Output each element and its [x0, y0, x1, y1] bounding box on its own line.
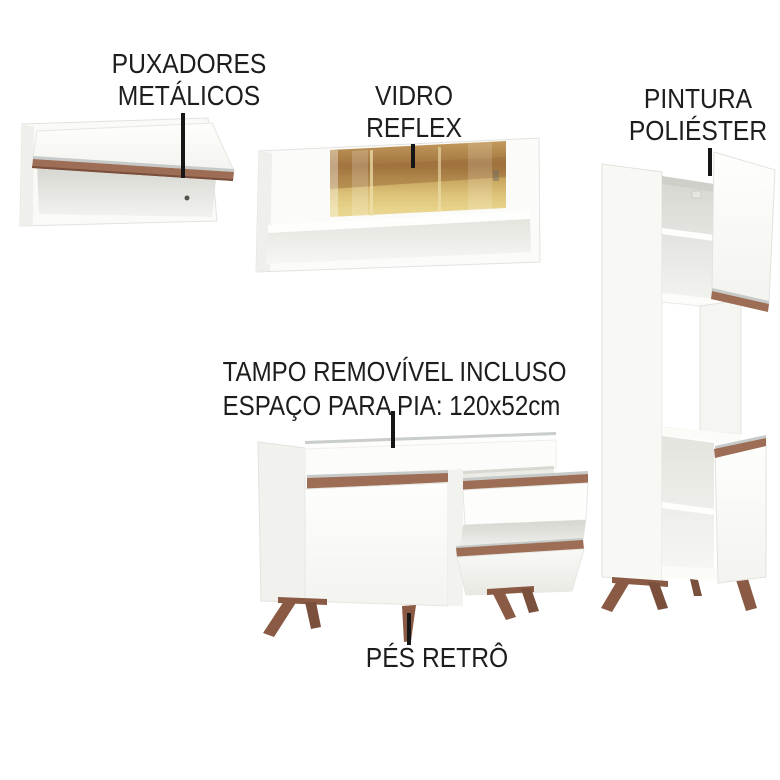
counter-side-face: [258, 442, 305, 602]
label-line: TAMPO REMOVÍVEL INCLUSO: [223, 355, 550, 389]
label-retro-feet: PÉS RETRÔ: [287, 642, 587, 674]
counter-cabinet-graphic: [258, 432, 588, 642]
glass-seam: [370, 150, 373, 216]
tall-foot-leg-back: [690, 579, 702, 596]
oven-gap-open-through: [662, 302, 700, 431]
tall-cabinet-graphic: [601, 152, 775, 612]
label-removable-countertop: TAMPO REMOVÍVEL INCLUSO ESPAÇO PARA PIA:…: [196, 355, 576, 423]
counter-foot-leg: [263, 601, 297, 637]
label-polyester-paint: PINTURA POLIÉSTER: [548, 83, 780, 147]
pointer-line-glass: [411, 144, 415, 168]
counter-foot-leg: [492, 591, 516, 620]
product-annotation-image: PUXADORES METÁLICOS VIDRO REFLEX PINTURA…: [0, 0, 780, 780]
tall-foot-leg: [736, 579, 757, 611]
glass-edge-reflection: [330, 150, 338, 217]
hinge-plate: [692, 191, 701, 198]
wall-cabinet-side-face: [20, 124, 34, 226]
glass-latch: [493, 170, 499, 181]
glass-highlight: [468, 142, 492, 211]
label-line: ESPAÇO PARA PIA: 120x52cm: [223, 389, 550, 423]
wall-cabinet-hinge-dot: [185, 196, 190, 201]
counter-left-door: [305, 483, 448, 606]
label-line: PUXADORES: [57, 48, 321, 80]
counter-foot-leg: [305, 602, 321, 629]
pointer-line-feet: [407, 613, 411, 645]
label-reflex-glass: VIDRO REFLEX: [264, 80, 564, 144]
tall-foot-leg: [601, 581, 630, 612]
label-line: PINTURA: [566, 83, 780, 115]
tall-cabinet-side-panel: [602, 164, 662, 581]
glass-cabinet-graphic: [256, 138, 540, 272]
pointer-line-handles: [181, 113, 185, 178]
glass-highlight: [352, 150, 368, 217]
glass-seam: [438, 147, 441, 212]
label-line: VIDRO: [282, 80, 546, 112]
wall-cabinet-graphic: [20, 118, 234, 226]
tall-lower-door-open: [715, 439, 766, 583]
label-line: REFLEX: [282, 112, 546, 144]
tall-right-column: [700, 300, 741, 434]
pointer-line-paint: [708, 148, 712, 176]
counter-center-stile: [448, 469, 463, 606]
label-line: POLIÉSTER: [566, 115, 780, 147]
label-line: PÉS RETRÔ: [305, 642, 569, 674]
tall-upper-door-open: [712, 152, 775, 303]
open-drawer-front: [463, 483, 588, 525]
